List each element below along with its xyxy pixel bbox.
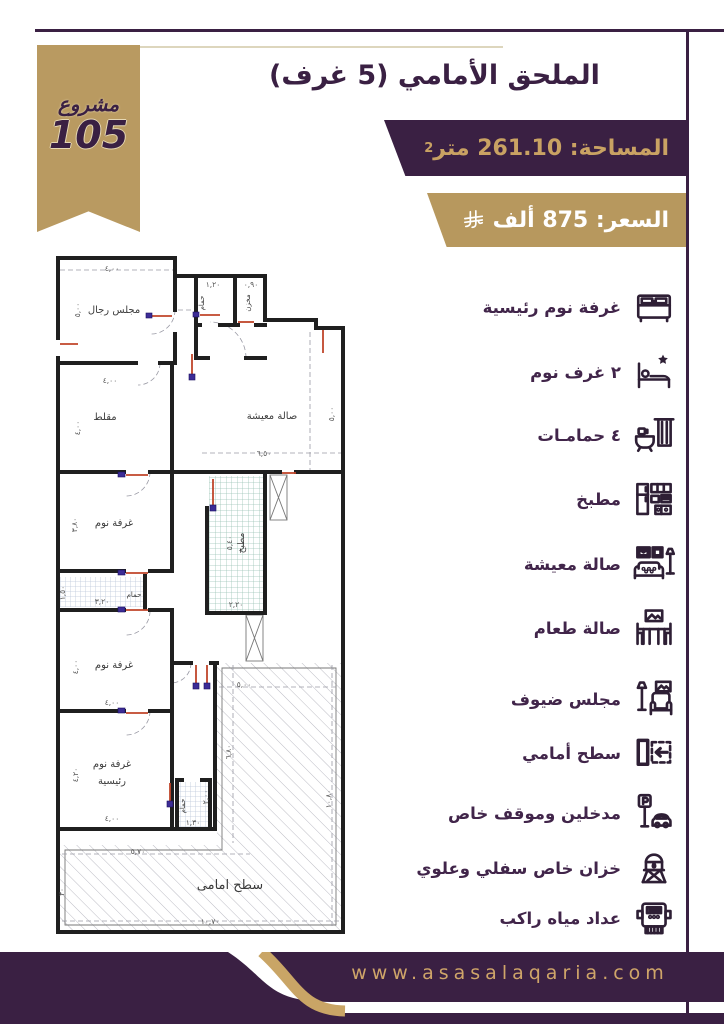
feature-entrances-parking: مدخلين وموقف خاص (448, 789, 676, 837)
feature-label: صالة طعام (534, 619, 621, 638)
svg-text:٤,٠٠: ٤,٠٠ (105, 264, 119, 273)
website-link[interactable]: www.asasalaqaria.com (350, 962, 670, 984)
feature-label: مدخلين وموقف خاص (448, 804, 621, 823)
project-ribbon: مشروع 105 (37, 45, 140, 232)
dining-room-icon (632, 606, 676, 650)
svg-text:٤,٠٠: ٤,٠٠ (71, 660, 80, 674)
svg-text:١٠,٧٠: ١٠,٧٠ (201, 917, 220, 926)
svg-text:حمام: حمام (127, 591, 142, 599)
svg-text:حمام: حمام (198, 296, 206, 311)
vertical-divider-line (686, 29, 689, 1024)
svg-text:٥,٠٠: ٥,٠٠ (327, 407, 336, 421)
feature-label: صالة معيشة (524, 555, 621, 574)
feature-water-tank: خزان خاص سفلي وعلوي (416, 844, 676, 892)
feature-living-room: صالة معيشة (524, 540, 676, 588)
svg-text:٤,٠٠: ٤,٠٠ (103, 376, 117, 385)
feature-label: ٢ غرف نوم (530, 363, 621, 382)
svg-text:٥,٠٠: ٥,٠٠ (73, 303, 82, 317)
feature-master-bedroom: غرفة نوم رئيسية (483, 283, 676, 331)
svg-text:١,٢٠: ١,٢٠ (206, 280, 220, 289)
master-bed-icon (632, 285, 676, 329)
feature-water-meter: عداد مياه راكب (499, 894, 676, 942)
svg-text:٣,٨٠: ٣,٨٠ (70, 518, 79, 532)
svg-text:٤,٠٠: ٤,٠٠ (73, 421, 82, 435)
svg-text:٥,٧٠: ٥,٧٠ (131, 847, 145, 856)
svg-text:حمام: حمام (179, 799, 187, 814)
svg-text:١,٥٠: ١,٥٠ (58, 586, 67, 600)
flyer-page: مشروع 105 الملحق الأمامي (5 غرف) المساحة… (0, 0, 724, 1024)
kitchen-area (209, 476, 263, 611)
svg-text:٦,٥٠: ٦,٥٠ (257, 449, 271, 458)
svg-text:مقلط: مقلط (93, 412, 116, 423)
feature-label: مطبخ (576, 490, 621, 509)
svg-text:١٠,٨٠: ١٠,٨٠ (324, 790, 333, 809)
project-ribbon-number: 105 (49, 116, 128, 156)
floor-plan: مجلس رجالمقلطصالة معيشةغرفة نومغرفة نومغ… (50, 246, 352, 946)
svg-text:مجلس رجال: مجلس رجال (88, 305, 140, 316)
svg-text:٤,٢٠: ٤,٢٠ (71, 768, 80, 782)
svg-text:صالة معيشة: صالة معيشة (247, 411, 298, 422)
feature-dining-room: صالة طعام (534, 604, 676, 652)
water-meter-icon (632, 896, 676, 940)
svg-text:غرفة نوم: غرفة نوم (95, 660, 133, 671)
feature-label: خزان خاص سفلي وعلوي (416, 859, 621, 878)
svg-text:٣,٢٠: ٣,٢٠ (95, 597, 109, 606)
area-superscript: 2 (424, 141, 433, 156)
feature-bedrooms: ٢ غرف نوم (530, 348, 676, 396)
svg-text:٥,٠٠: ٥,٠٠ (237, 680, 251, 689)
svg-text:٣٠: ٣٠ (57, 888, 66, 896)
kitchen-icon (632, 477, 676, 521)
parking-icon (632, 791, 676, 835)
bathtub-icon (632, 413, 676, 457)
project-ribbon-word: مشروع (58, 92, 119, 116)
svg-text:٢,٠٠: ٢,٠٠ (201, 790, 210, 804)
features-list: غرفة نوم رئيسية ٢ غرف نوم ٤ حمامـات مطبخ (446, 0, 676, 960)
guest-majlis-icon (632, 677, 676, 721)
svg-text:رئيسية: رئيسية (98, 776, 126, 787)
feature-label: غرفة نوم رئيسية (483, 298, 621, 317)
svg-text:٠,٩٠: ٠,٩٠ (244, 280, 258, 289)
svg-text:١,٣٠: ١,٣٠ (186, 818, 200, 827)
svg-text:غرفة نوم: غرفة نوم (93, 759, 131, 770)
svg-text:٤,٠٠: ٤,٠٠ (105, 698, 119, 707)
svg-text:سطح امامى: سطح امامى (197, 878, 263, 893)
feature-label: ٤ حمامـات (537, 426, 621, 445)
feature-bathrooms: ٤ حمامـات (537, 411, 676, 459)
svg-text:٤,٠٠: ٤,٠٠ (105, 814, 119, 823)
door-sensors (118, 312, 216, 807)
svg-text:مطبخ: مطبخ (237, 532, 247, 553)
feature-guest-majlis: مجلس ضيوف (511, 675, 676, 723)
feature-label: مجلس ضيوف (511, 690, 621, 709)
feature-kitchen: مطبخ (576, 475, 676, 523)
bed-star-icon (632, 350, 676, 394)
feature-label: سطح أمامي (522, 744, 621, 763)
living-room-icon (632, 542, 676, 586)
feature-front-roof: سطح أمامي (522, 729, 676, 777)
svg-text:غرفة نوم: غرفة نوم (95, 518, 133, 529)
svg-text:٥,٤٠: ٥,٤٠ (225, 536, 234, 550)
svg-text:٦,٨٠: ٦,٨٠ (224, 745, 233, 759)
feature-label: عداد مياه راكب (499, 909, 621, 928)
front-roof-icon (632, 731, 676, 775)
water-tank-icon (632, 846, 676, 890)
svg-text:٢,٢٠: ٢,٢٠ (229, 600, 243, 609)
svg-text:مخزن: مخزن (244, 294, 252, 312)
